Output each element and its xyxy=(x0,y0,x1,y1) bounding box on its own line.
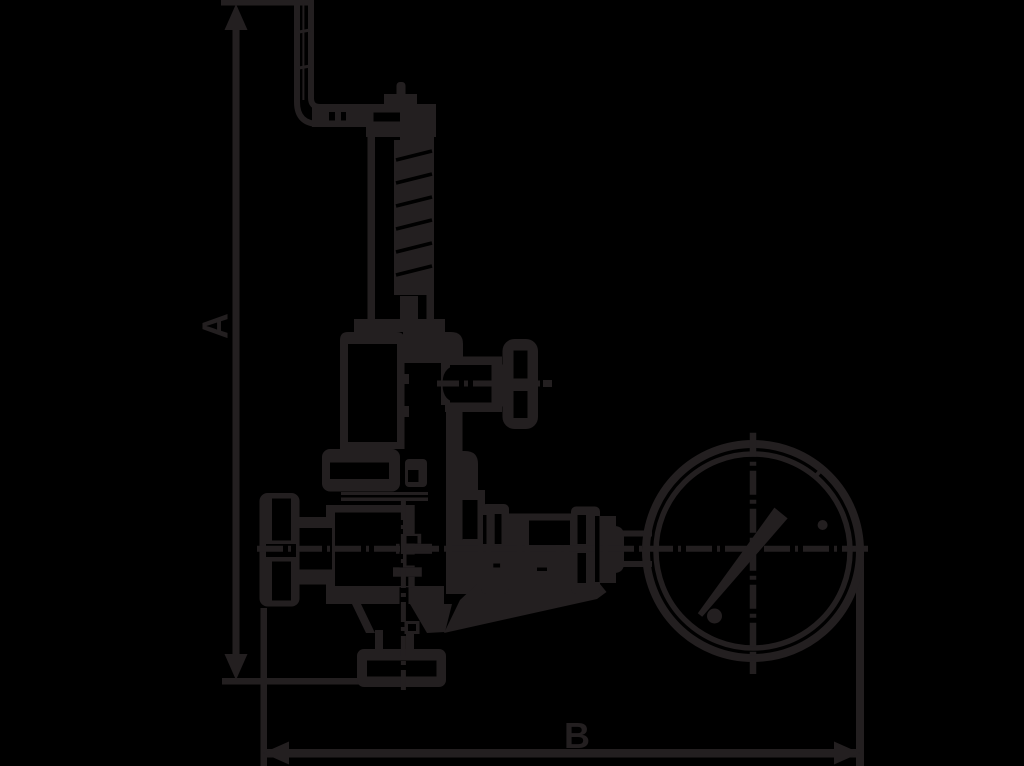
svg-text:B: B xyxy=(564,715,590,756)
svg-text:A: A xyxy=(195,313,236,339)
